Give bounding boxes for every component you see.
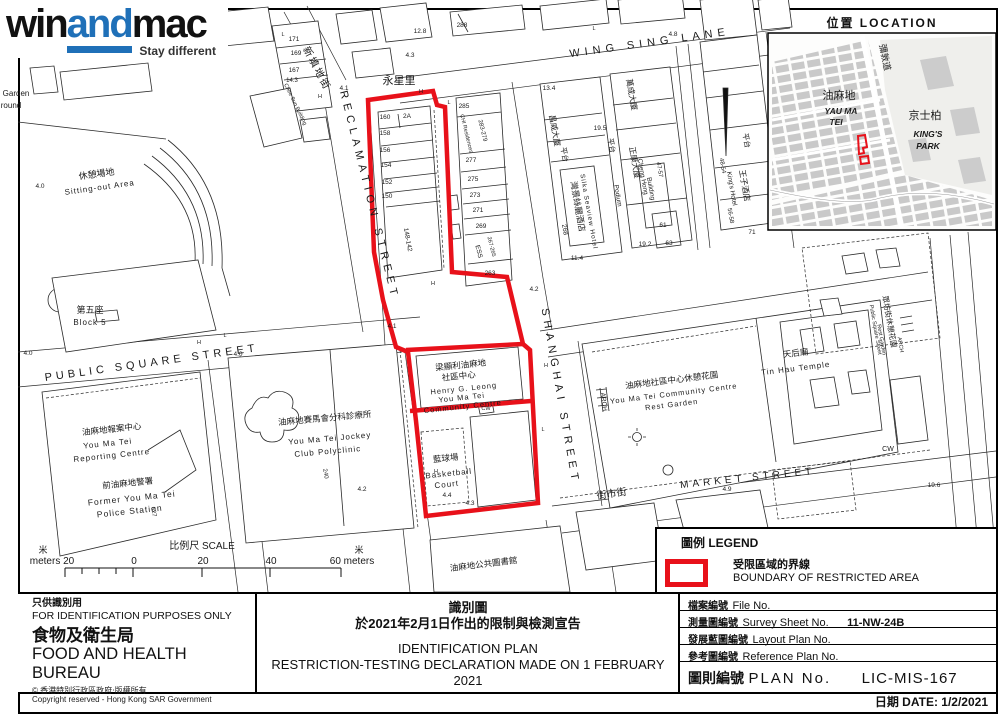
logo-win: win	[6, 2, 67, 46]
winandmac-logo: winandmac Stay different	[6, 2, 228, 58]
logo-mac: mac	[132, 2, 206, 46]
map-label: 京士柏	[909, 108, 942, 122]
map-label: 油麻地	[823, 88, 856, 102]
logo-tagline: Stay different	[139, 44, 216, 58]
date-label: 日期 DATE: 1/2/2021	[680, 693, 988, 710]
identification-plan-page: { "logo": {"win": "win", "and": "and", "…	[0, 0, 1000, 716]
location-inset: 油麻地YAU MATEI京士柏KING'SPARK彌敦道	[0, 0, 1000, 716]
inset-title: 位置 LOCATION	[768, 14, 996, 31]
map-label: TEI	[829, 117, 843, 127]
map-label: YAU MA	[825, 106, 858, 116]
logo-and: and	[67, 2, 132, 53]
map-label: KING'S	[914, 129, 943, 139]
map-label: PARK	[916, 141, 940, 151]
